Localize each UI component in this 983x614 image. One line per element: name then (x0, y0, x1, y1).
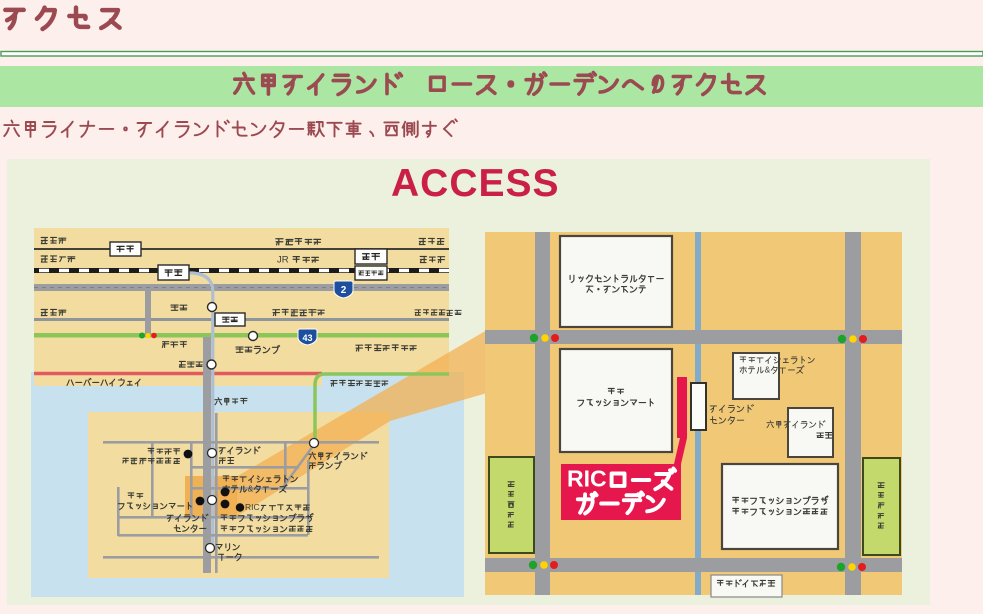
svg-text:RIC: RIC (245, 502, 260, 512)
svg-text:JR: JR (277, 255, 289, 266)
svg-text:43: 43 (302, 333, 312, 343)
svg-text:&: & (765, 364, 771, 374)
svg-text:&: & (248, 483, 254, 493)
svg-text:2: 2 (341, 285, 347, 296)
svg-text:ACCESS: ACCESS (391, 162, 560, 205)
svg-text:RIC: RIC (567, 465, 607, 491)
